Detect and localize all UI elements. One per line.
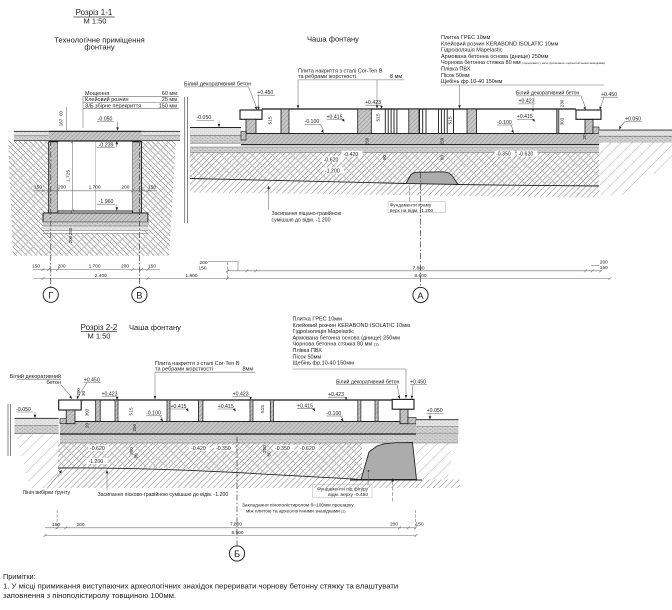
- svg-text:фонтану: фонтану: [84, 43, 114, 52]
- svg-text:515: 515: [376, 113, 382, 121]
- svg-text:1.700: 1.700: [89, 185, 101, 191]
- svg-text:303: 303: [85, 408, 90, 416]
- svg-text:515: 515: [129, 407, 135, 415]
- svg-text:200: 200: [121, 185, 129, 191]
- svg-text:Розріз 2-2: Розріз 2-2: [81, 323, 118, 332]
- svg-text:Армована бетонна основа (днище: Армована бетонна основа (днище) 250мм: [441, 54, 549, 60]
- svg-text:-0.350: -0.350: [496, 152, 511, 158]
- svg-text:80: 80: [440, 155, 445, 161]
- svg-text:150: 150: [32, 263, 40, 269]
- svg-text:Лінія вибірки ґрунту: Лінія вибірки ґрунту: [23, 489, 71, 496]
- svg-text:150: 150: [198, 266, 206, 272]
- svg-text:М 1:50: М 1:50: [88, 332, 111, 341]
- svg-text:Клейовий розчин KERABOND ISOLA: Клейовий розчин KERABOND ISOLATIC 10мм: [441, 40, 559, 47]
- svg-text:8 мм: 8 мм: [390, 74, 402, 80]
- svg-text:Б: Б: [234, 549, 240, 559]
- svg-text:167: 167: [59, 118, 64, 126]
- svg-text:150: 150: [34, 185, 42, 191]
- svg-text:200: 200: [76, 522, 84, 528]
- svg-text:Чаша фонтану: Чаша фонтану: [129, 323, 181, 332]
- svg-text:200: 200: [390, 522, 398, 528]
- svg-text:80: 80: [134, 453, 139, 459]
- svg-text:Засипання пісково-гравійною су: Засипання пісково-гравійною сумішшю до в…: [98, 491, 229, 498]
- svg-text:-0.350: -0.350: [275, 446, 290, 452]
- svg-text:150: 150: [600, 265, 608, 271]
- svg-text:200: 200: [199, 260, 207, 266]
- svg-text:Плитка ГРЕС 10мм: Плитка ГРЕС 10мм: [441, 35, 491, 41]
- svg-text:Плівка ПВХ: Плівка ПВХ: [293, 348, 323, 354]
- svg-text:відм. верху -0.450: відм. верху -0.450: [328, 492, 368, 498]
- svg-text:-1.200: -1.200: [89, 459, 104, 465]
- svg-text:Примітки:: Примітки:: [3, 572, 36, 581]
- svg-text:-0.620: -0.620: [519, 152, 534, 158]
- svg-text:200: 200: [600, 259, 608, 265]
- svg-text:150: 150: [52, 522, 60, 528]
- svg-text:та ребрами жорсткості: та ребрами жорсткості: [155, 367, 213, 373]
- svg-text:Пісок 50мм: Пісок 50мм: [293, 354, 322, 360]
- svg-text:Фундаменти під фігуру: Фундаменти під фігуру: [317, 487, 369, 493]
- svg-text:80: 80: [267, 451, 272, 457]
- svg-text:1. У місці примикання виступаю: 1. У місці примикання виступаючих археол…: [3, 582, 398, 591]
- svg-text:Закладання пінополістиролом б=: Закладання пінополістиролом б=100мм прош…: [242, 502, 354, 508]
- svg-text:1.800: 1.800: [185, 273, 197, 279]
- svg-text:бетон: бетон: [46, 380, 61, 386]
- svg-text:1.725: 1.725: [66, 170, 72, 182]
- svg-text:80: 80: [382, 155, 387, 161]
- svg-text:-0.620: -0.620: [90, 446, 105, 452]
- svg-text:1.700: 1.700: [89, 263, 101, 269]
- svg-text:230: 230: [560, 99, 565, 107]
- svg-text:-0.420: -0.420: [191, 446, 206, 452]
- svg-text:Щебінь фр.10-40 150мм: Щебінь фр.10-40 150мм: [293, 361, 355, 367]
- svg-text:Щебінь фр.10-40 150мм: Щебінь фр.10-40 150мм: [441, 79, 503, 85]
- svg-text:515: 515: [267, 116, 273, 124]
- svg-text:250: 250: [132, 423, 137, 431]
- svg-text:200: 200: [68, 235, 73, 243]
- svg-text:Клейовий розчин KERABOND ISOLA: Клейовий розчин KERABOND ISOLATIC 10мм: [293, 322, 411, 329]
- svg-text:Фундаменти храму: Фундаменти храму: [390, 203, 432, 208]
- svg-text:515: 515: [260, 405, 266, 413]
- svg-text:Білий декоративний бетон: Білий декоративний бетон: [184, 81, 251, 88]
- svg-text:8мм: 8мм: [243, 367, 254, 373]
- svg-text:Г: Г: [48, 291, 53, 301]
- svg-text:заповнення з пінополістиролу т: заповнення з пінополістиролу товщиною 10…: [3, 591, 176, 600]
- svg-text:250: 250: [365, 137, 370, 145]
- svg-text:7.800: 7.800: [230, 522, 242, 528]
- svg-text:-0.620: -0.620: [324, 157, 339, 163]
- svg-text:20: 20: [582, 134, 587, 140]
- svg-text:Білий декоративний: Білий декоративний: [10, 373, 61, 380]
- svg-text:20: 20: [85, 423, 90, 429]
- svg-text:8.500: 8.500: [231, 530, 243, 536]
- svg-text:-0.350: -0.350: [216, 446, 231, 452]
- svg-text:верх на відм. -1.200: верх на відм. -1.200: [390, 208, 434, 213]
- svg-text:200: 200: [121, 263, 129, 269]
- svg-text:Чорнова бетонна стяжка 80 мм (: Чорнова бетонна стяжка 80 мм (1): [293, 342, 380, 348]
- svg-text:та ребрами жорсткості: та ребрами жорсткості: [298, 74, 356, 80]
- svg-text:М 1:50: М 1:50: [84, 17, 107, 26]
- svg-text:-0.620: -0.620: [300, 446, 315, 452]
- svg-text:7.800: 7.800: [412, 265, 424, 271]
- svg-text:250: 250: [440, 137, 445, 145]
- svg-text:Клейовий розчин: Клейовий розчин: [85, 96, 129, 103]
- svg-text:Пісок 50мм: Пісок 50мм: [441, 73, 470, 79]
- svg-text:60: 60: [59, 111, 64, 117]
- svg-text:303: 303: [560, 117, 565, 125]
- svg-text:між плитою та археологічними з: між плитою та археологічними знахідками …: [246, 508, 346, 514]
- svg-text:Армована бетонна основа (днище: Армована бетонна основа (днище) 250мм: [293, 335, 401, 341]
- svg-text:Гідроізоляція Mapelastic: Гідроізоляція Mapelastic: [293, 329, 355, 335]
- svg-text:сумішшю до відм. -1.200: сумішшю до відм. -1.200: [272, 217, 331, 223]
- svg-text:515: 515: [448, 116, 454, 124]
- svg-text:Плівка ПВХ: Плівка ПВХ: [441, 67, 471, 73]
- svg-text:2.400: 2.400: [95, 273, 107, 279]
- svg-text:-1.200: -1.200: [325, 169, 340, 175]
- svg-text:А: А: [417, 291, 424, 301]
- svg-text:В: В: [136, 291, 142, 301]
- svg-text:Засипання піщано-гравійною: Засипання піщано-гравійною: [272, 210, 342, 217]
- svg-text:Плитка ГРЕС 10мм: Плитка ГРЕС 10мм: [293, 317, 343, 323]
- svg-text:8.500: 8.500: [414, 273, 426, 279]
- svg-text:250: 250: [68, 227, 73, 235]
- svg-text:Чаша фонтану: Чаша фонтану: [307, 35, 359, 44]
- svg-text:Гідроізоляція Mapelastic: Гідроізоляція Mapelastic: [441, 48, 503, 54]
- svg-text:-0.420: -0.420: [344, 152, 359, 158]
- svg-text:30: 30: [81, 391, 86, 397]
